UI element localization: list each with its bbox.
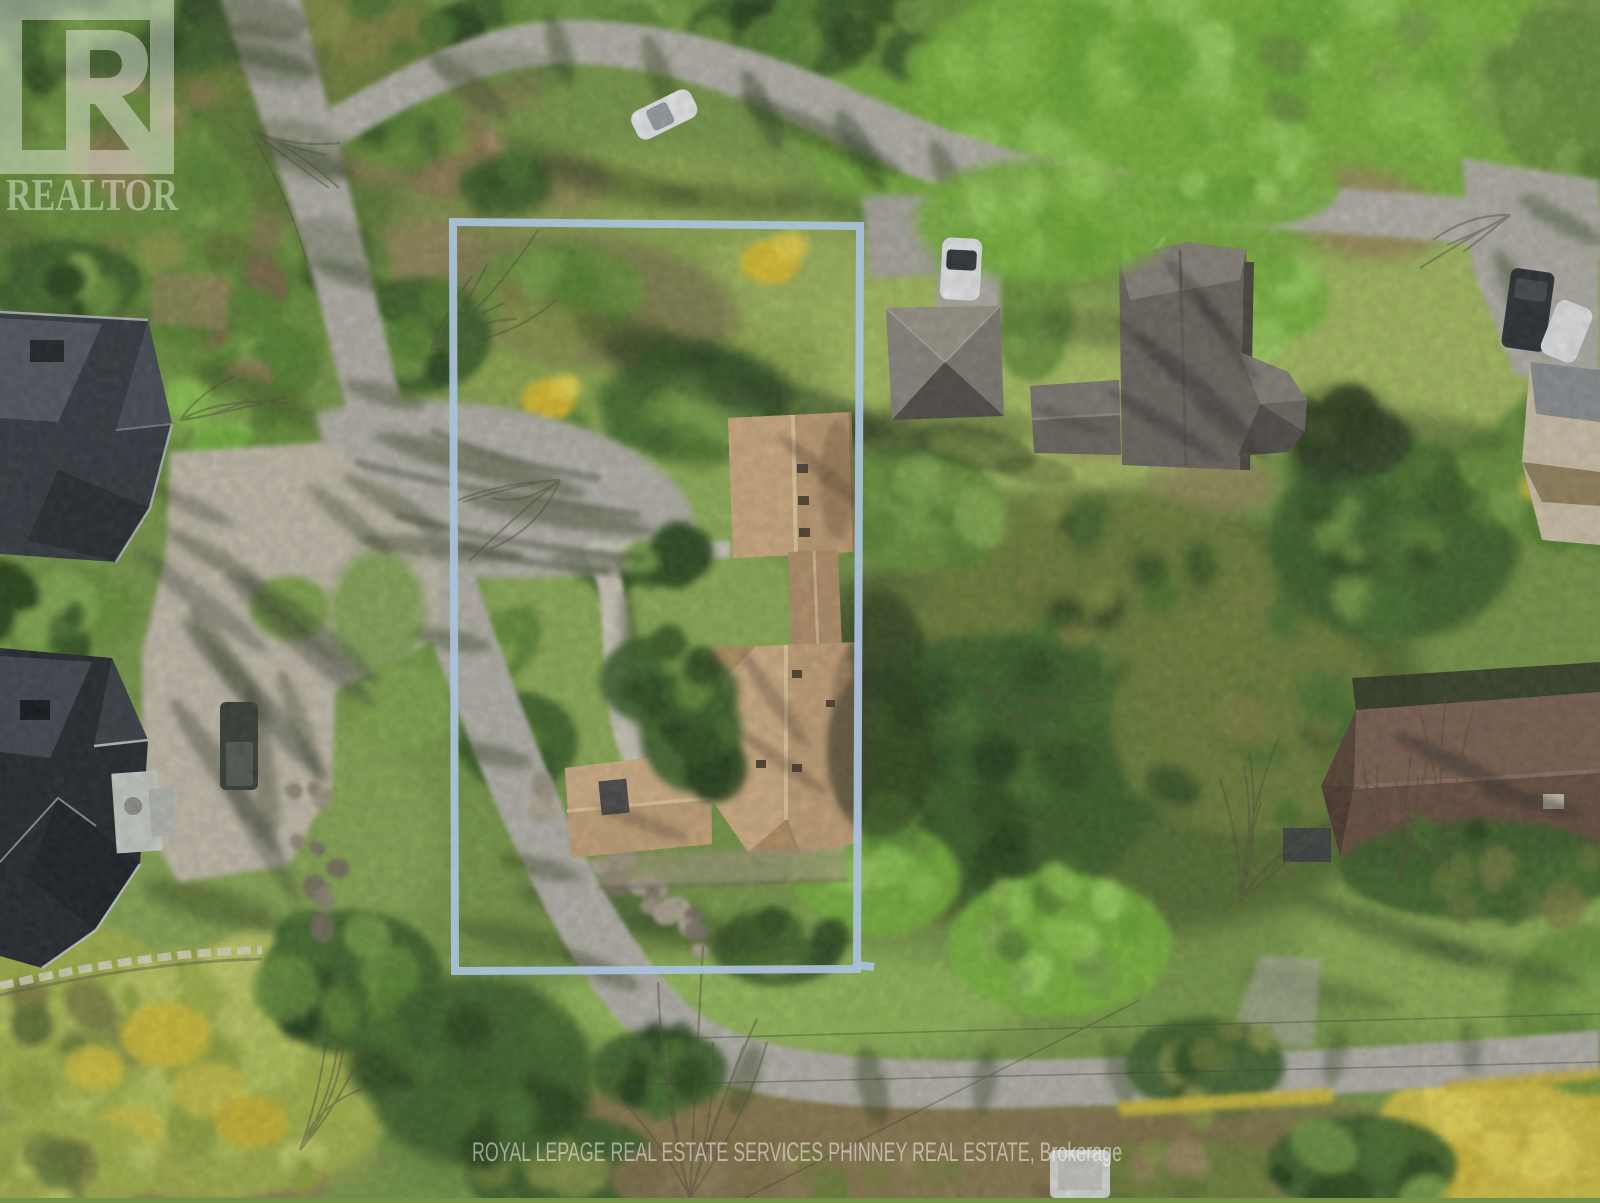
svg-text:REALTOR: REALTOR bbox=[6, 169, 179, 220]
svg-text:ROYAL LEPAGE REAL ESTATE SERVI: ROYAL LEPAGE REAL ESTATE SERVICES PHINNE… bbox=[472, 1137, 1122, 1167]
